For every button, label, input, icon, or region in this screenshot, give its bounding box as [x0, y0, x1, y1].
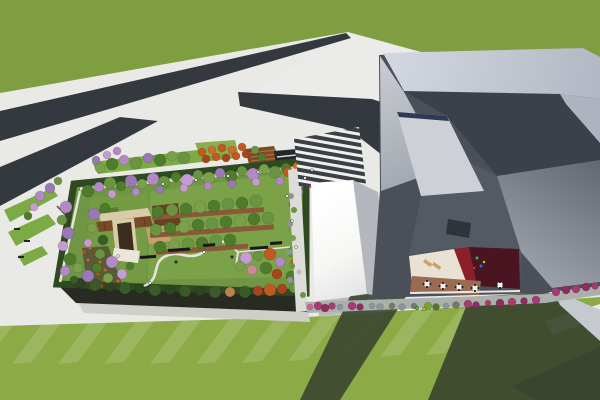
person [295, 246, 298, 249]
tree [135, 284, 145, 294]
tree [92, 156, 100, 164]
tree [94, 182, 104, 192]
tree [252, 178, 260, 186]
tree [165, 285, 175, 295]
flowering-bush [453, 302, 460, 309]
tree [222, 198, 234, 210]
tree [193, 170, 203, 180]
bush [287, 277, 293, 283]
person [195, 179, 198, 182]
courtyard [409, 247, 520, 295]
tree [103, 151, 111, 159]
tree [143, 153, 153, 163]
red-flower [99, 261, 102, 264]
tree [250, 195, 262, 207]
person [473, 267, 476, 270]
bench [14, 228, 20, 230]
flowering-bush [496, 299, 504, 307]
tree [224, 234, 236, 246]
person [175, 261, 178, 264]
tree [164, 222, 176, 234]
tree [62, 227, 74, 239]
tree [100, 203, 110, 213]
tree [258, 153, 266, 161]
flowering-bush [321, 304, 329, 312]
flowering-bush [592, 283, 599, 290]
tree [215, 168, 225, 178]
tree [149, 284, 161, 296]
tree [95, 163, 105, 173]
tree [194, 201, 206, 213]
flowering-bush [485, 300, 491, 306]
person [149, 282, 152, 285]
bush [291, 207, 297, 213]
tree [251, 146, 259, 154]
person [162, 183, 165, 186]
person [479, 264, 482, 267]
tree [220, 216, 232, 228]
flowering-bush [314, 302, 322, 310]
tree [239, 286, 251, 298]
tree [137, 179, 147, 189]
flowering-bush [521, 298, 528, 305]
flowering-bush [443, 303, 449, 309]
tree [195, 286, 205, 296]
red-flower [87, 259, 90, 262]
tree [166, 204, 178, 216]
tree [70, 276, 78, 284]
flowering-bush [464, 300, 472, 308]
flowering-bush [552, 288, 560, 296]
tree [206, 218, 218, 230]
tree [87, 223, 97, 233]
tree [156, 186, 164, 194]
person [291, 220, 294, 223]
flowering-bush [582, 283, 590, 291]
person [227, 175, 230, 178]
tree [228, 180, 236, 188]
tree [117, 269, 127, 279]
tree [105, 282, 115, 292]
flowering-bush [433, 304, 440, 311]
tree [225, 287, 235, 297]
flowering-bush [473, 302, 480, 309]
tree [98, 235, 108, 245]
tree [58, 241, 68, 251]
tree [275, 257, 285, 267]
tree [269, 166, 281, 178]
person [422, 307, 425, 310]
tree [178, 221, 190, 233]
flowering-bush [562, 286, 570, 294]
flowering-bush [369, 303, 375, 309]
tree [126, 262, 134, 270]
tree [222, 154, 230, 162]
tree [272, 269, 282, 279]
tree [209, 286, 221, 298]
tree [60, 201, 72, 213]
tree [237, 166, 247, 176]
bush [286, 249, 292, 255]
tree [247, 265, 257, 275]
tree [82, 185, 94, 197]
flowering-bush [337, 304, 343, 310]
tree [88, 208, 100, 220]
tree [180, 184, 188, 192]
tree [259, 164, 269, 174]
flowering-bush [329, 303, 336, 310]
person [304, 177, 307, 180]
tree [132, 188, 140, 196]
tree [84, 239, 92, 247]
tree [150, 224, 162, 236]
flowering-bush [399, 304, 406, 311]
tree [277, 284, 287, 294]
tree [82, 270, 94, 282]
person [483, 261, 486, 264]
bench [18, 256, 24, 258]
tree [113, 147, 121, 155]
tree [208, 146, 216, 154]
bush [290, 235, 296, 241]
person [311, 169, 314, 172]
tree [253, 286, 263, 296]
flowering-bush [508, 298, 516, 306]
tree [171, 172, 181, 182]
tree [212, 153, 220, 161]
tree [264, 284, 276, 296]
bush [288, 193, 294, 199]
rendering-canvas [0, 0, 600, 400]
tree [64, 253, 76, 265]
flowering-bush [572, 285, 580, 293]
tree [104, 177, 116, 189]
tree [253, 251, 263, 261]
person [117, 255, 120, 258]
tree [152, 206, 164, 218]
tree [103, 273, 113, 283]
tree [238, 143, 246, 151]
tree [119, 155, 129, 165]
tree [196, 237, 208, 249]
tree [234, 215, 246, 227]
person [298, 271, 301, 274]
tree [242, 150, 250, 158]
person [257, 171, 260, 174]
tree [204, 182, 212, 190]
bench [24, 240, 30, 242]
tree [276, 177, 284, 185]
tree [125, 175, 137, 187]
person [475, 256, 478, 259]
flowering-bush [357, 304, 364, 311]
tree [130, 157, 142, 169]
tree [232, 152, 240, 160]
person [203, 251, 206, 254]
tree [95, 249, 105, 259]
flowering-bush [348, 302, 356, 310]
tree [198, 148, 206, 156]
tree [35, 191, 45, 201]
tree [262, 212, 274, 224]
tree [73, 263, 83, 273]
tree [106, 158, 118, 170]
tree [106, 256, 118, 268]
tree [167, 151, 177, 161]
tree [116, 181, 126, 191]
tree [147, 173, 159, 185]
person [286, 195, 289, 198]
tree [57, 215, 67, 225]
tree [264, 248, 276, 260]
red-flower [82, 250, 86, 254]
tree [180, 203, 192, 215]
tree [45, 183, 55, 193]
flowering-bush [307, 304, 313, 310]
tree [178, 152, 190, 164]
tree [30, 203, 38, 211]
tree [208, 200, 220, 212]
flowering-bush [532, 296, 540, 304]
tree [119, 282, 131, 294]
tree [260, 262, 272, 274]
bush [289, 263, 295, 269]
tree [179, 285, 191, 297]
tree [92, 263, 102, 273]
tree [24, 212, 32, 220]
person [231, 256, 234, 259]
tree [108, 190, 116, 198]
red-flower [104, 269, 107, 272]
person [415, 306, 418, 309]
tree [192, 219, 204, 231]
tree [218, 144, 226, 152]
tree [236, 197, 248, 209]
site-rendering [0, 0, 600, 400]
tree [235, 261, 245, 271]
tree [248, 213, 260, 225]
tree [154, 154, 166, 166]
tree [202, 155, 210, 163]
tree [54, 177, 62, 185]
flowering-bush [377, 304, 384, 311]
red-flower [117, 280, 120, 283]
tree [154, 241, 166, 253]
flowering-bush [389, 303, 395, 309]
tree [60, 266, 70, 276]
bush [300, 292, 306, 298]
